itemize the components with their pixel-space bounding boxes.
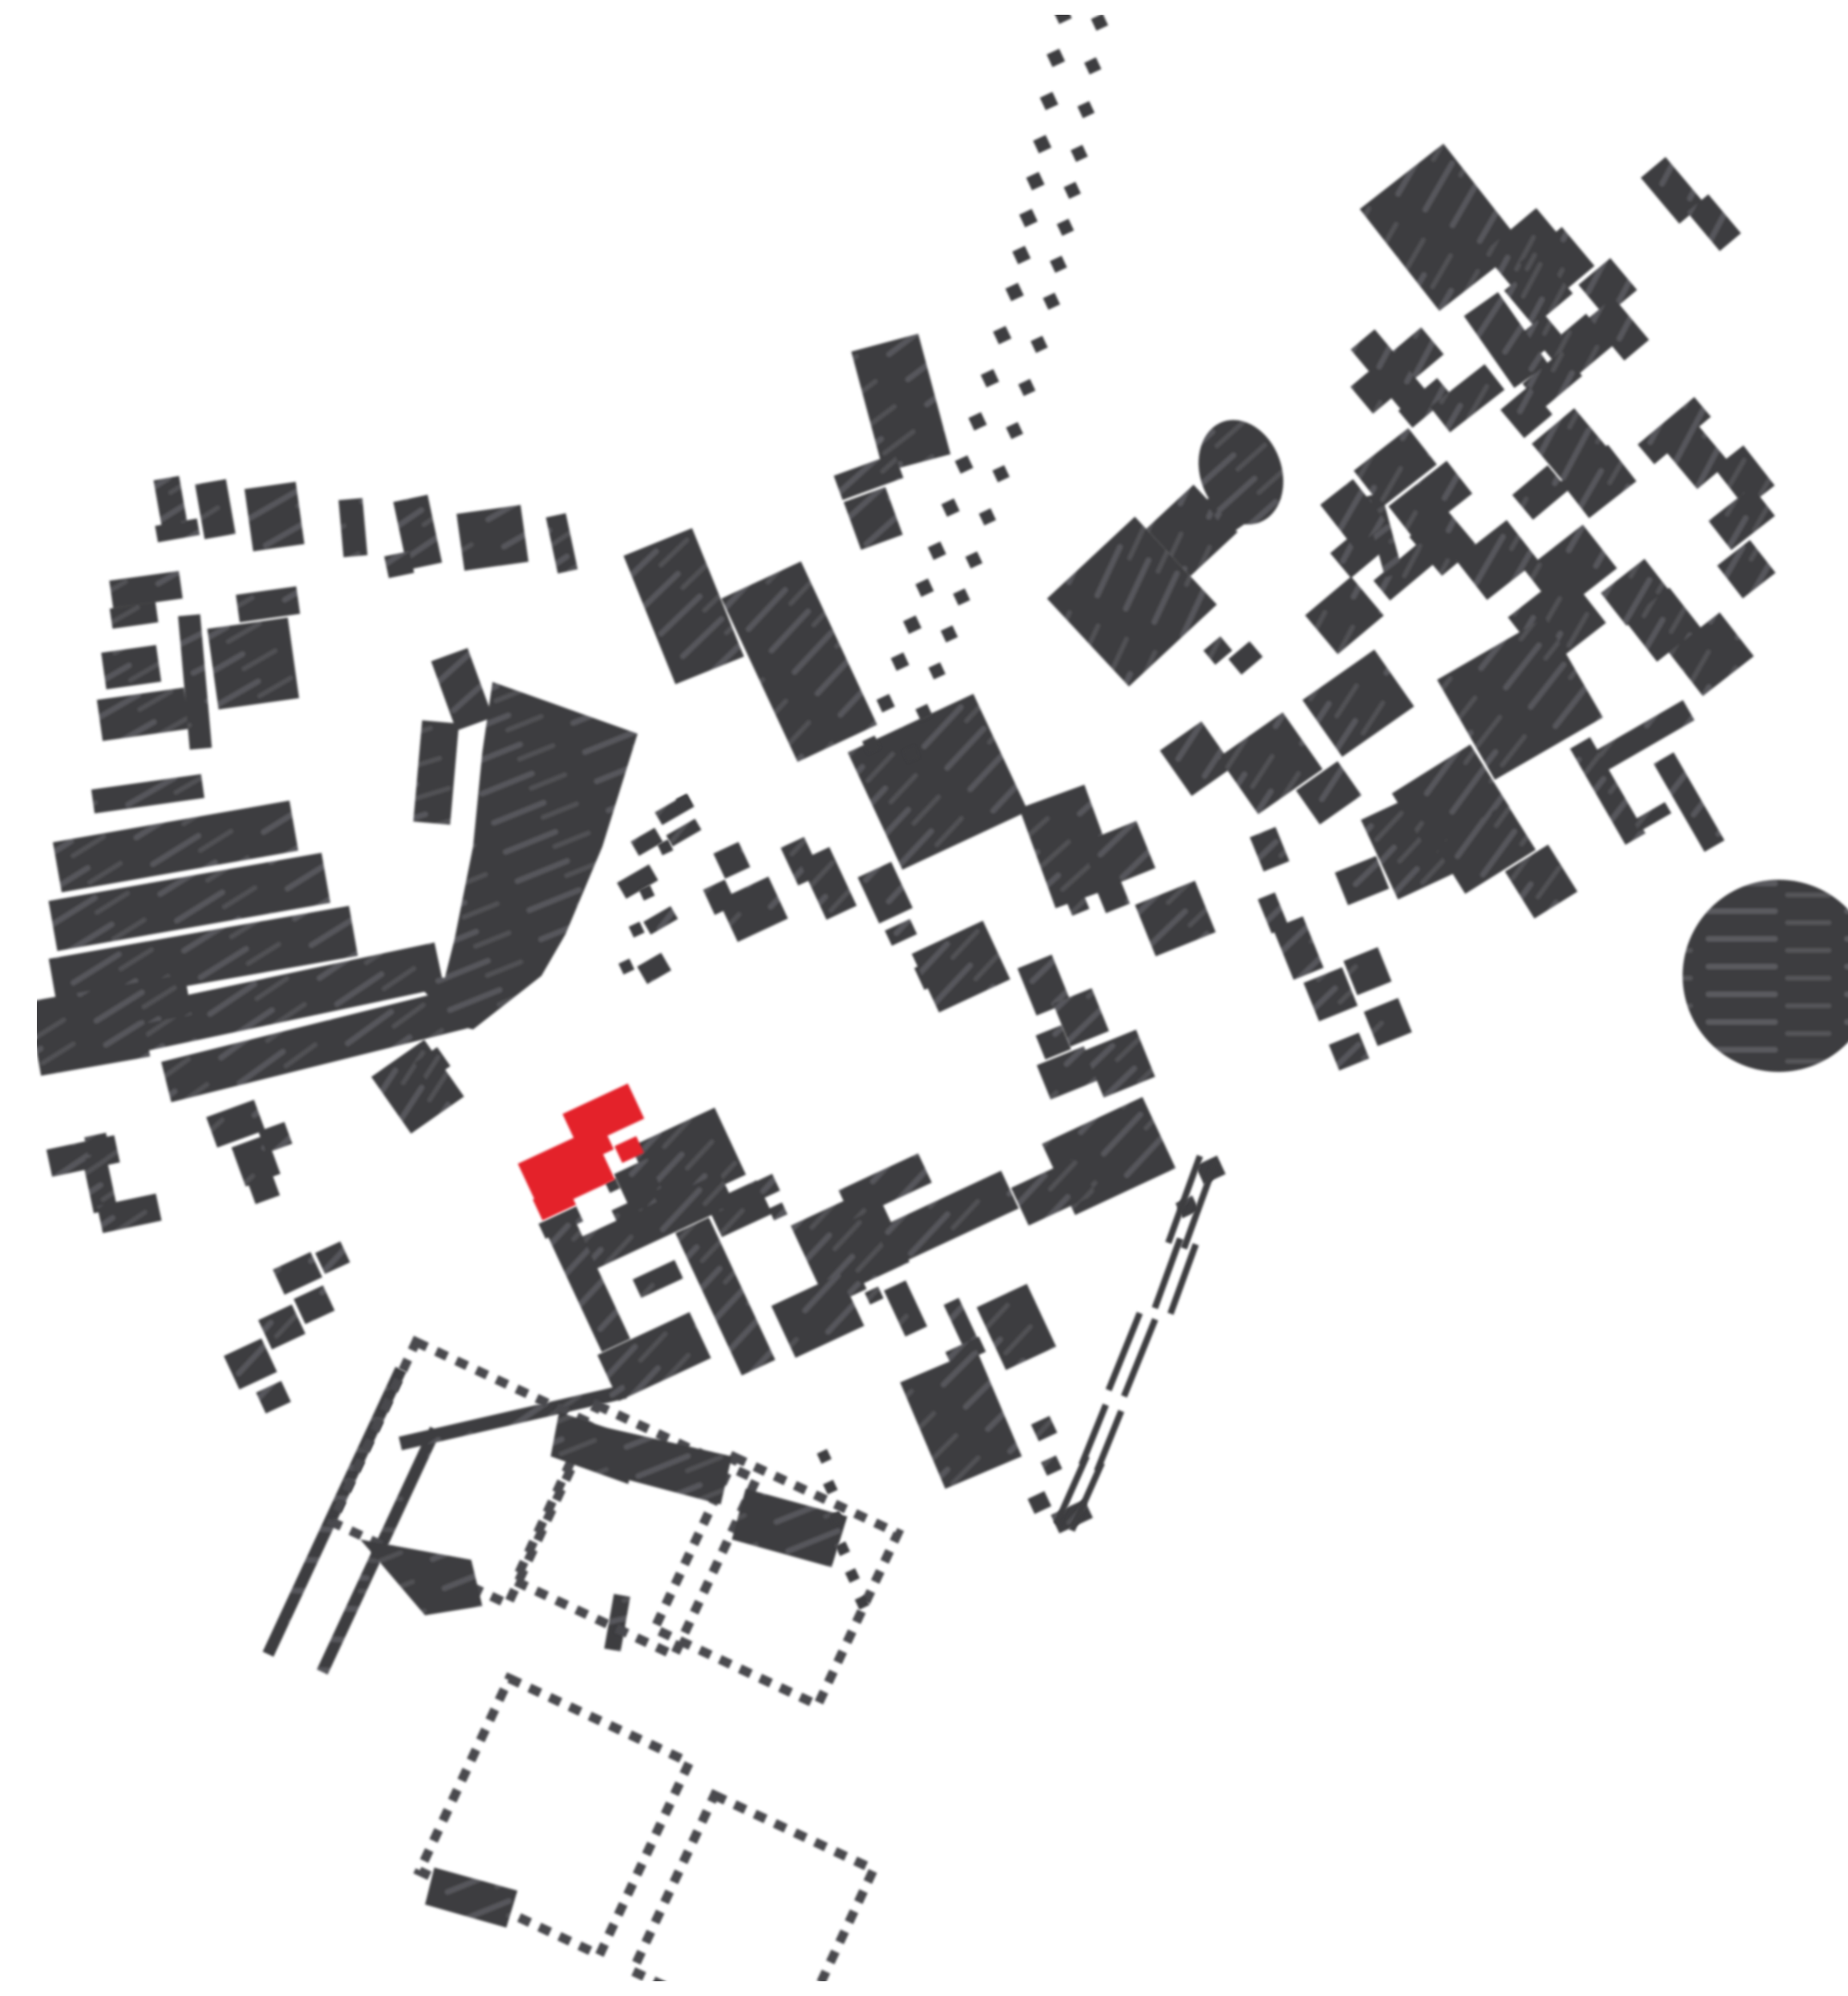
- building-footprint: [207, 617, 298, 709]
- building-footprint: [245, 481, 305, 551]
- building-footprint: [338, 498, 367, 557]
- site-plan-figure: [37, 15, 1848, 1981]
- building-footprint: [102, 645, 162, 689]
- site-plan-map: [37, 15, 1848, 1981]
- building-footprint: [456, 505, 529, 570]
